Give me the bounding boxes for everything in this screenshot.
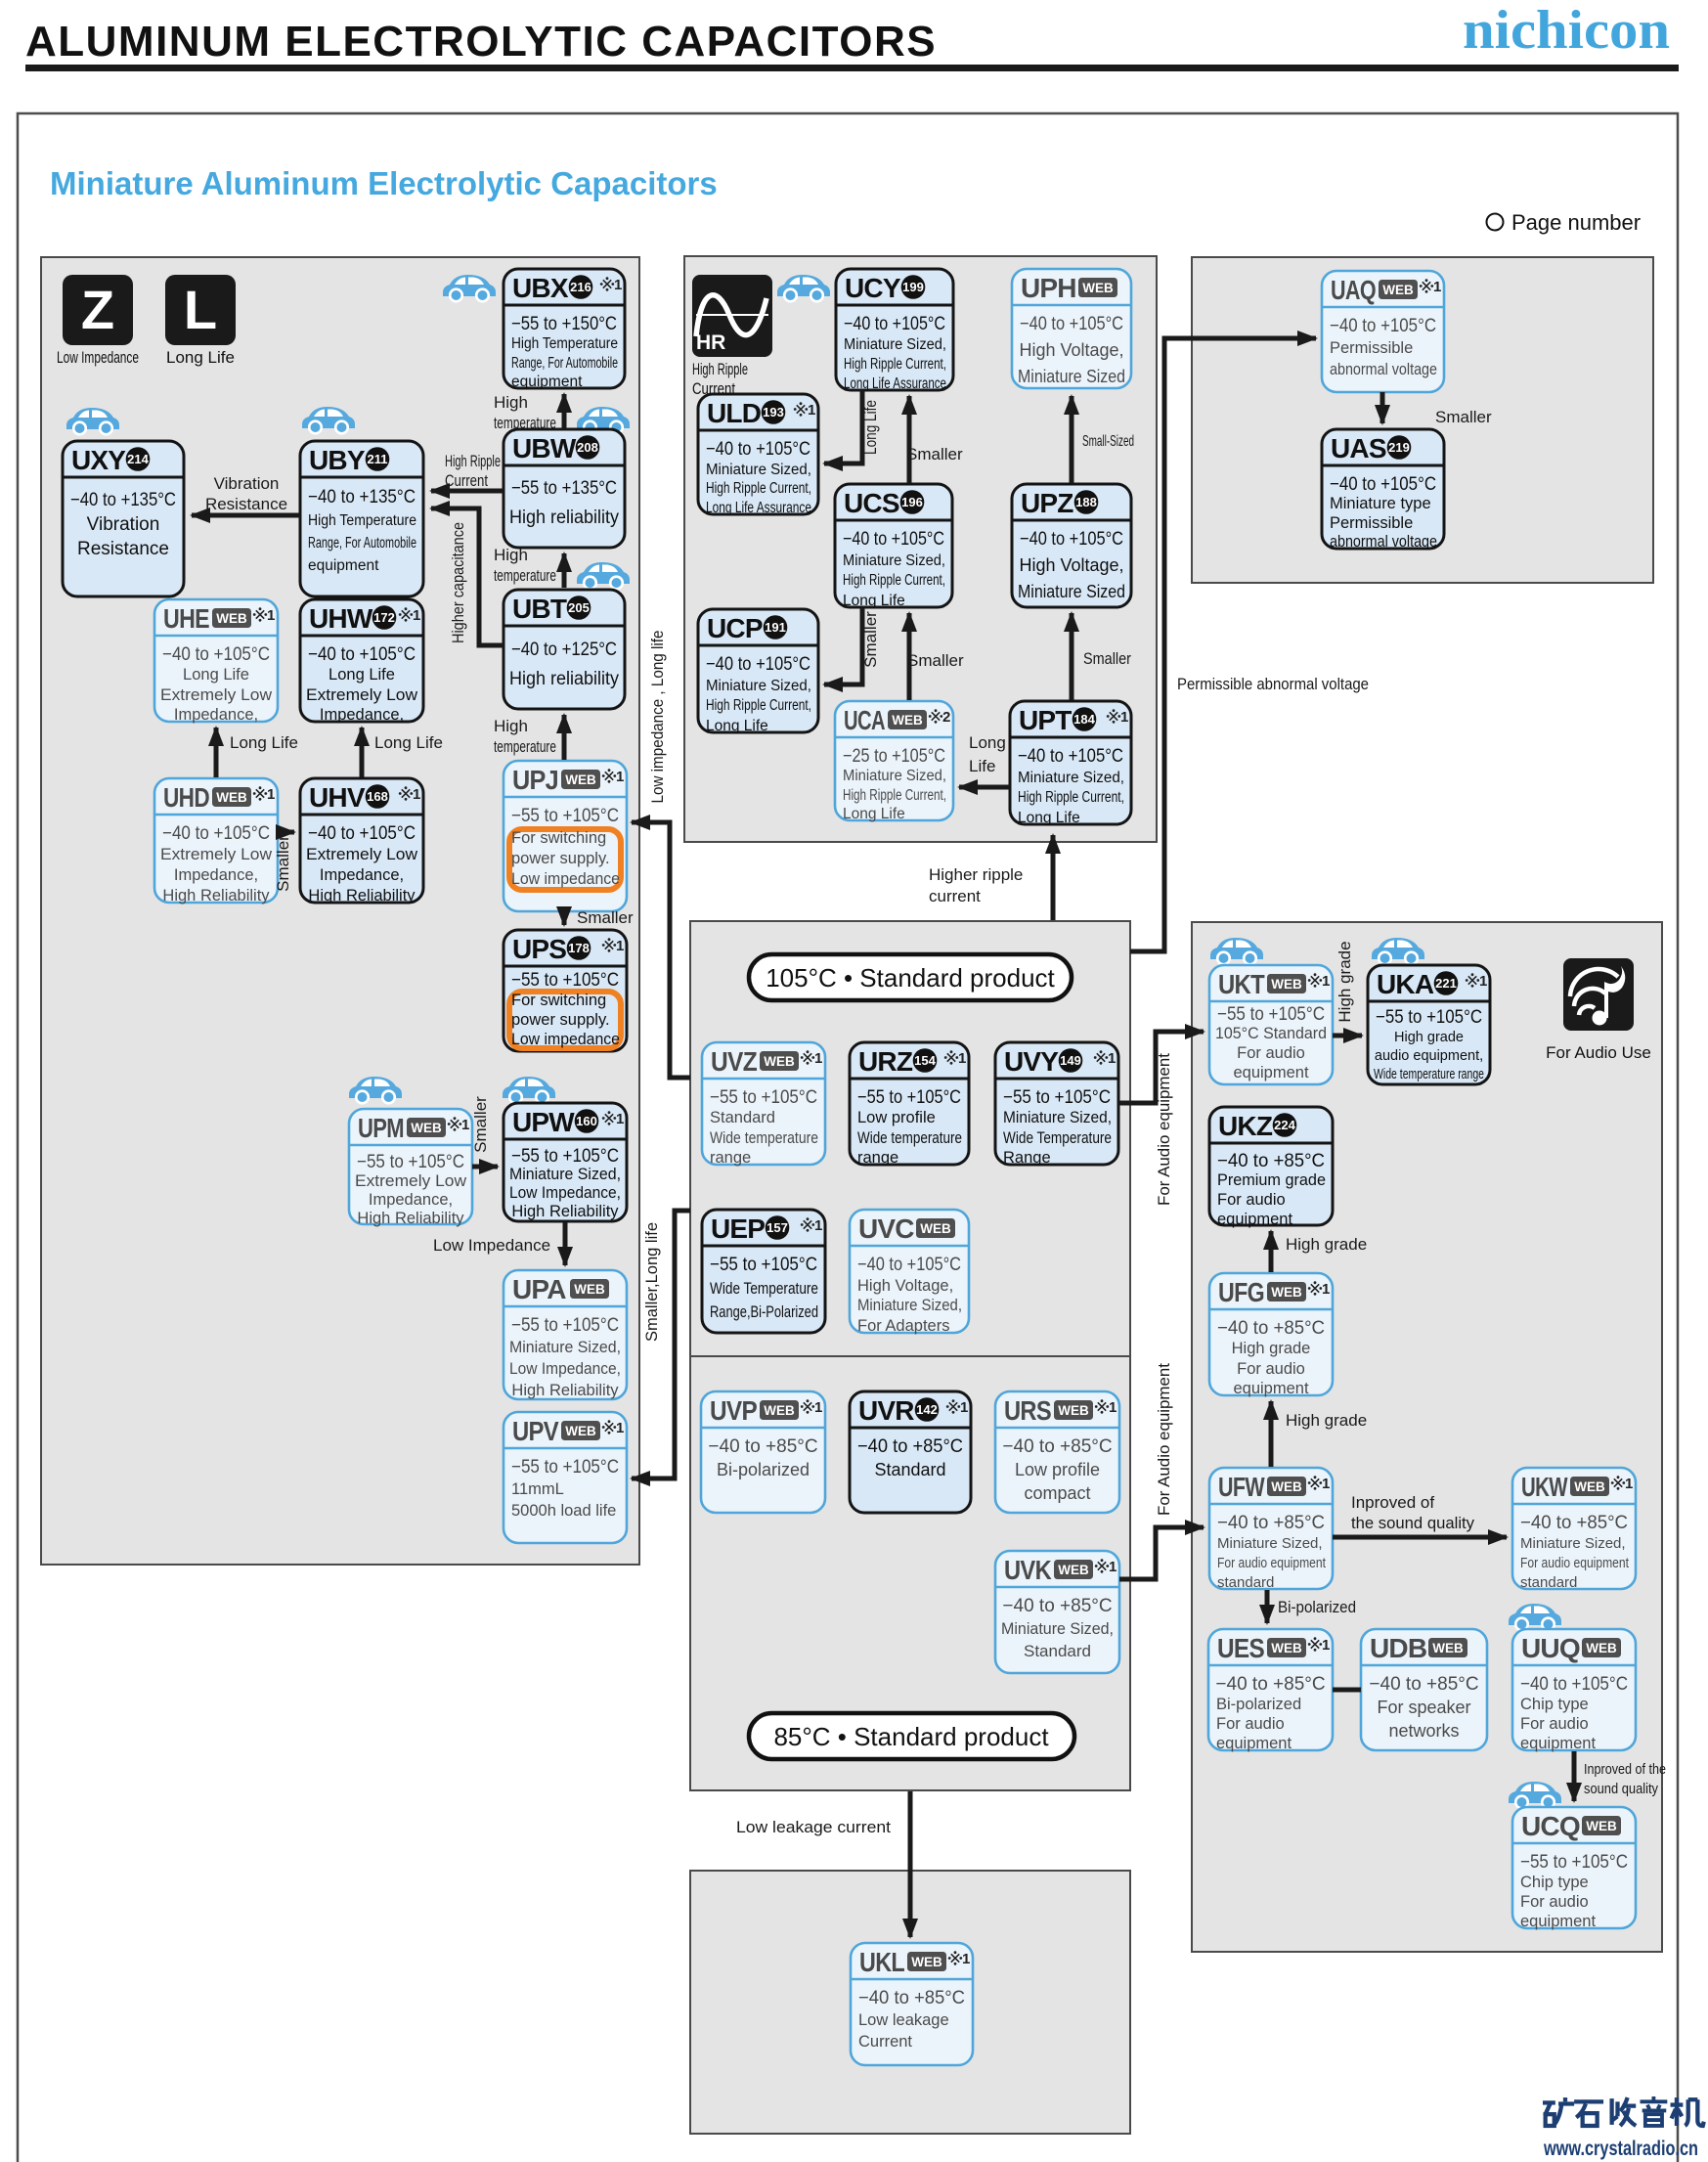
svg-text:UCA: UCA [844, 705, 885, 735]
svg-text:1: 1 [1322, 973, 1330, 990]
svg-text:Extremely Low: Extremely Low [355, 1172, 466, 1190]
svg-text:Extremely Low: Extremely Low [306, 846, 417, 863]
svg-text:abnormal voltage: abnormal voltage [1330, 533, 1437, 551]
svg-text:Miniature Sized,: Miniature Sized, [1520, 1535, 1626, 1552]
svg-text:Page number: Page number [1511, 210, 1641, 235]
svg-text:Smaller: Smaller [907, 651, 964, 670]
svg-text:Permissible: Permissible [1330, 339, 1413, 357]
svg-text:Impedance,: Impedance, [320, 866, 404, 884]
svg-text:178: 178 [568, 941, 590, 955]
svg-text:Current: Current [445, 471, 488, 490]
svg-text:188: 188 [1075, 495, 1097, 509]
svg-text:−55 to +105°C: −55 to +105°C [1003, 1087, 1111, 1108]
svg-text:1: 1 [616, 769, 624, 785]
svg-text:networks: networks [1388, 1721, 1459, 1741]
svg-text:Resistance: Resistance [77, 539, 169, 559]
svg-text:1: 1 [808, 402, 815, 419]
svg-text:WEB: WEB [216, 611, 247, 626]
svg-text:Smaller: Smaller [471, 1096, 490, 1153]
svg-text:High reliability: High reliability [509, 507, 619, 528]
svg-text:ULD: ULD [707, 398, 762, 428]
svg-text:High: High [494, 393, 528, 412]
svg-text:205: 205 [568, 600, 590, 615]
svg-text:High Ripple: High Ripple [445, 452, 501, 470]
svg-text:1: 1 [1120, 709, 1128, 726]
svg-text:1: 1 [1479, 973, 1487, 990]
svg-text:Wide temperature range: Wide temperature range [1374, 1067, 1484, 1082]
svg-text:105°C • Standard product: 105°C • Standard product [766, 963, 1055, 993]
svg-text:−55 to +105°C: −55 to +105°C [511, 1146, 619, 1167]
svg-text:1: 1 [814, 1399, 822, 1416]
svg-text:Wide temperature: Wide temperature [710, 1129, 818, 1147]
svg-text:Extremely Low: Extremely Low [160, 846, 272, 863]
svg-text:Wide Temperature: Wide Temperature [1003, 1129, 1112, 1147]
svg-text:Smaller,Long life: Smaller,Long life [642, 1222, 661, 1342]
svg-text:1: 1 [814, 1050, 822, 1067]
svg-text:1: 1 [1322, 1476, 1330, 1492]
svg-text:−25 to +105°C: −25 to +105°C [843, 746, 945, 767]
svg-text:Vibration: Vibration [87, 514, 160, 535]
svg-text:UPW: UPW [512, 1107, 575, 1137]
svg-text:the sound quality: the sound quality [1351, 1514, 1474, 1532]
svg-text:199: 199 [902, 280, 924, 294]
svg-text:−40 to +105°C: −40 to +105°C [1520, 1674, 1628, 1695]
svg-text:UAS: UAS [1331, 433, 1386, 463]
svg-text:UPZ: UPZ [1021, 488, 1073, 518]
svg-text:−55 to +105°C: −55 to +105°C [511, 970, 619, 991]
svg-text:Impedance,: Impedance, [320, 706, 404, 724]
svg-text:Long Life: Long Life [183, 666, 249, 684]
svg-text:High grade: High grade [1286, 1235, 1367, 1254]
svg-text:abnormal voltage: abnormal voltage [1330, 361, 1437, 378]
svg-text:WEB: WEB [764, 1403, 795, 1418]
svg-text:Vibration: Vibration [214, 474, 280, 493]
svg-text:WEB: WEB [216, 790, 247, 805]
svg-text:For Audio equipment: For Audio equipment [1155, 1363, 1173, 1516]
svg-text:Smaller: Smaller [861, 611, 880, 668]
svg-text:UFG: UFG [1218, 1277, 1264, 1307]
svg-text:Miniature Sized,: Miniature Sized, [706, 462, 811, 478]
svg-text:power supply.: power supply. [511, 1011, 610, 1029]
svg-text:−40 to +85°C: −40 to +85°C [1369, 1674, 1478, 1695]
svg-text:UFW: UFW [1218, 1472, 1265, 1502]
svg-text:High grade: High grade [1336, 941, 1354, 1022]
svg-text:WEB: WEB [565, 1424, 596, 1438]
svg-text:WEB: WEB [574, 1282, 605, 1297]
svg-text:Miniature Aluminum Electrolyti: Miniature Aluminum Electrolytic Capacito… [50, 165, 718, 201]
svg-text:UCY: UCY [845, 273, 901, 303]
svg-text:−55 to +105°C: −55 to +105°C [511, 806, 619, 826]
svg-text:For Adapters: For Adapters [857, 1317, 949, 1335]
svg-text:Bi-polarized: Bi-polarized [1216, 1696, 1301, 1713]
svg-text:Chip type: Chip type [1520, 1696, 1589, 1713]
svg-text:sound quality: sound quality [1584, 1782, 1659, 1797]
svg-text:−40 to +85°C: −40 to +85°C [1217, 1151, 1325, 1171]
svg-text:compact: compact [1024, 1483, 1090, 1503]
svg-text:WEB: WEB [764, 1054, 795, 1069]
svg-text:Low leakage current: Low leakage current [736, 1818, 891, 1836]
svg-text:−40 to +85°C: −40 to +85°C [1215, 1674, 1325, 1695]
svg-text:High Temperature: High Temperature [308, 512, 416, 529]
svg-text:Permissible: Permissible [1330, 514, 1413, 532]
svg-text:UPH: UPH [1021, 273, 1076, 303]
svg-text:Low impedance: Low impedance [511, 870, 620, 888]
svg-text:For audio: For audio [1237, 1360, 1305, 1378]
svg-text:UPV: UPV [512, 1416, 559, 1446]
svg-text:High Reliability: High Reliability [511, 1203, 619, 1220]
svg-text:UXY: UXY [71, 445, 126, 475]
svg-text:149: 149 [1060, 1053, 1081, 1068]
svg-text:equipment: equipment [1520, 1735, 1596, 1752]
svg-text:UCS: UCS [844, 488, 899, 518]
svg-text:High Ripple Current,: High Ripple Current, [706, 697, 811, 714]
svg-text:168: 168 [367, 789, 388, 804]
svg-text:temperature: temperature [494, 566, 556, 585]
svg-text:WEB: WEB [1271, 1285, 1302, 1300]
svg-text:−40 to +105°C: −40 to +105°C [308, 823, 416, 844]
svg-text:214: 214 [127, 452, 149, 466]
svg-text:Smaller: Smaller [906, 445, 963, 463]
svg-text:High Ripple Current,: High Ripple Current, [1018, 789, 1124, 806]
svg-text:224: 224 [1274, 1118, 1295, 1132]
svg-text:216: 216 [570, 280, 591, 294]
svg-text:Life: Life [969, 757, 995, 775]
svg-text:WEB: WEB [1382, 283, 1414, 297]
svg-text:−55 to +105°C: −55 to +105°C [357, 1152, 464, 1172]
svg-text:Miniature Sized,: Miniature Sized, [706, 678, 811, 694]
svg-text:For switching: For switching [511, 829, 606, 847]
svg-text:High Voltage,: High Voltage, [857, 1277, 953, 1295]
svg-text:−40 to +105°C: −40 to +105°C [1330, 316, 1436, 336]
svg-text:11mmL: 11mmL [511, 1480, 564, 1498]
svg-text:−55 to +105°C: −55 to +105°C [857, 1087, 961, 1108]
svg-text:Smaller: Smaller [1083, 649, 1131, 668]
svg-text:1: 1 [1108, 1050, 1116, 1067]
svg-text:UPM: UPM [358, 1113, 404, 1143]
svg-text:1: 1 [413, 786, 420, 803]
svg-text:1: 1 [267, 786, 275, 803]
svg-text:Chip type: Chip type [1520, 1874, 1589, 1891]
svg-text:WEB: WEB [1271, 1479, 1302, 1494]
svg-text:219: 219 [1388, 440, 1410, 455]
svg-text:For audio equipment: For audio equipment [1217, 1555, 1327, 1571]
svg-text:For Audio Use: For Audio Use [1546, 1043, 1651, 1062]
svg-text:Miniature Sized,: Miniature Sized, [857, 1297, 962, 1314]
svg-text:WEB: WEB [1058, 1403, 1089, 1418]
svg-text:WEB: WEB [565, 772, 596, 787]
svg-text:standard: standard [1217, 1574, 1274, 1591]
svg-text:193: 193 [763, 405, 784, 419]
svg-text:For speaker: For speaker [1377, 1698, 1470, 1717]
svg-text:URZ: URZ [858, 1046, 913, 1077]
svg-text:Low Impedance,: Low Impedance, [509, 1184, 621, 1202]
svg-text:equipment: equipment [1233, 1064, 1308, 1081]
svg-text:WEB: WEB [892, 713, 923, 728]
svg-text:208: 208 [577, 440, 598, 455]
svg-text:1: 1 [1322, 1281, 1330, 1298]
svg-text:High Ripple Current,: High Ripple Current, [843, 787, 946, 804]
svg-text:−55 to +105°C: −55 to +105°C [710, 1255, 817, 1275]
svg-text:1: 1 [960, 1399, 968, 1416]
svg-text:Long Life: Long Life [861, 400, 880, 455]
svg-text:UCP: UCP [707, 613, 763, 643]
svg-text:Range: Range [1003, 1149, 1051, 1167]
svg-text:High Reliability: High Reliability [162, 887, 270, 905]
svg-text:196: 196 [901, 495, 923, 509]
svg-text:−40 to +135°C: −40 to +135°C [308, 487, 416, 507]
svg-text:For audio: For audio [1217, 1191, 1286, 1209]
svg-text:Current: Current [858, 2033, 912, 2051]
svg-text:UPT: UPT [1019, 705, 1072, 735]
svg-text:Range, For Automobile: Range, For Automobile [308, 535, 416, 552]
svg-text:184: 184 [1073, 712, 1095, 727]
svg-text:Standard: Standard [874, 1460, 945, 1479]
svg-text:UDB: UDB [1370, 1633, 1426, 1663]
svg-text:UAQ: UAQ [1331, 275, 1376, 305]
svg-text:High Ripple Current,: High Ripple Current, [844, 356, 946, 373]
svg-text:High Ripple: High Ripple [692, 360, 748, 378]
svg-text:Long Life: Long Life [843, 806, 905, 822]
svg-text:−40 to +105°C: −40 to +105°C [706, 654, 810, 675]
svg-text:Extremely Low: Extremely Low [160, 686, 272, 704]
svg-text:UHV: UHV [309, 782, 366, 813]
svg-text:Impedance,: Impedance, [174, 706, 258, 724]
svg-text:WEB: WEB [411, 1121, 442, 1135]
svg-text:Miniature type: Miniature type [1330, 495, 1431, 512]
svg-text:−40 to +105°C: −40 to +105°C [162, 823, 270, 844]
svg-text:−40 to +105°C: −40 to +105°C [1018, 746, 1123, 767]
svg-text:L: L [184, 279, 217, 340]
svg-text:Small-Sized: Small-Sized [1082, 433, 1134, 450]
svg-text:Miniature Sized,: Miniature Sized, [1217, 1535, 1323, 1552]
svg-text:Low impedance: Low impedance [511, 1031, 620, 1048]
svg-text:Long Life: Long Life [1018, 810, 1080, 826]
svg-text:High grade: High grade [1232, 1340, 1311, 1357]
svg-text:WEB: WEB [1271, 1641, 1302, 1655]
svg-text:Standard: Standard [1024, 1642, 1091, 1660]
svg-text:Long Life: Long Life [843, 593, 905, 609]
svg-text:power supply.: power supply. [511, 850, 610, 867]
svg-text:Low profile: Low profile [1015, 1460, 1100, 1479]
svg-text:UKZ: UKZ [1218, 1111, 1273, 1141]
svg-text:2: 2 [942, 709, 950, 726]
svg-text:Permissible abnormal voltage: Permissible abnormal voltage [1177, 675, 1369, 693]
svg-text:Z: Z [81, 279, 114, 340]
svg-text:UKL: UKL [859, 1947, 905, 1977]
svg-text:1: 1 [962, 1951, 970, 1967]
svg-text:−40 to +85°C: −40 to +85°C [857, 1436, 963, 1457]
svg-text:WEB: WEB [1058, 1563, 1089, 1577]
svg-text:For audio: For audio [1520, 1715, 1589, 1733]
svg-text:range: range [857, 1149, 898, 1167]
svg-text:154: 154 [914, 1053, 936, 1068]
svg-text:UPJ: UPJ [512, 765, 558, 795]
svg-text:−55 to +105°C: −55 to +105°C [511, 1315, 619, 1336]
svg-text:−55 to +105°C: −55 to +105°C [511, 1457, 619, 1478]
svg-text:1: 1 [1322, 1637, 1330, 1654]
svg-text:Long Life: Long Life [230, 733, 298, 752]
svg-text:WEB: WEB [1586, 1641, 1617, 1655]
svg-text:Miniature Sized,: Miniature Sized, [1018, 770, 1124, 786]
svg-text:UEP: UEP [711, 1213, 765, 1244]
svg-text:equipment: equipment [308, 557, 379, 574]
svg-text:Higher ripple: Higher ripple [929, 865, 1023, 884]
svg-text:160: 160 [576, 1114, 597, 1128]
svg-text:For audio: For audio [1216, 1715, 1285, 1733]
svg-text:High reliability: High reliability [509, 669, 619, 689]
svg-text:−40 to +85°C: −40 to +85°C [1002, 1436, 1112, 1457]
svg-text:−55 to +105°C: −55 to +105°C [710, 1087, 817, 1108]
svg-text:Standard: Standard [710, 1109, 775, 1126]
svg-text:equipment: equipment [1520, 1913, 1596, 1930]
svg-text:1: 1 [1109, 1399, 1117, 1416]
svg-text:Miniature Sized: Miniature Sized [1018, 367, 1125, 386]
svg-text:1: 1 [1109, 1559, 1117, 1575]
svg-text:High Ripple Current,: High Ripple Current, [706, 480, 811, 497]
svg-text:Long Life Assurance: Long Life Assurance [706, 500, 811, 516]
svg-text:Low Impedance: Low Impedance [57, 348, 139, 367]
svg-text:Impedance,: Impedance, [174, 866, 258, 884]
svg-text:UBW: UBW [512, 433, 577, 463]
svg-text:Miniature Sized,: Miniature Sized, [843, 768, 946, 784]
svg-text:URS: URS [1004, 1395, 1051, 1426]
svg-text:equipment: equipment [1217, 1211, 1292, 1228]
svg-text:UCQ: UCQ [1521, 1811, 1580, 1841]
svg-text:1: 1 [267, 607, 275, 624]
svg-text:High: High [494, 717, 528, 735]
svg-text:UVY: UVY [1004, 1046, 1059, 1077]
svg-text:Smaller: Smaller [1435, 408, 1492, 426]
svg-text:temperature: temperature [494, 737, 556, 756]
svg-text:UVZ: UVZ [711, 1046, 758, 1077]
svg-text:WEB: WEB [920, 1221, 951, 1236]
svg-text:Low profile: Low profile [857, 1109, 936, 1126]
svg-text:UKT: UKT [1218, 969, 1265, 999]
svg-text:WEB: WEB [1432, 1641, 1464, 1655]
svg-text:Long Life: Long Life [166, 348, 235, 367]
svg-text:For audio: For audio [1237, 1044, 1305, 1062]
svg-text:−40 to +125°C: −40 to +125°C [511, 640, 617, 660]
svg-text:High Voltage,: High Voltage, [1019, 555, 1123, 575]
svg-text:Premium grade: Premium grade [1217, 1171, 1326, 1189]
svg-text:−40 to +85°C: −40 to +85°C [1002, 1596, 1112, 1616]
svg-text:Extremely Low: Extremely Low [306, 686, 417, 704]
svg-text:Long: Long [969, 733, 1006, 752]
svg-text:Range,Bi-Polarized: Range,Bi-Polarized [710, 1303, 818, 1321]
svg-text:UHE: UHE [163, 603, 209, 634]
svg-text:Range, For Automobile: Range, For Automobile [511, 355, 618, 372]
svg-text:157: 157 [766, 1220, 788, 1235]
svg-text:1: 1 [461, 1117, 469, 1133]
svg-text:−55 to +105°C: −55 to +105°C [1376, 1007, 1482, 1028]
svg-text:Miniature Sized,: Miniature Sized, [844, 336, 946, 353]
svg-text:Miniature Sized,: Miniature Sized, [509, 1339, 621, 1356]
svg-text:1: 1 [413, 607, 420, 624]
svg-text:UBY: UBY [309, 445, 366, 475]
svg-text:1: 1 [1433, 279, 1441, 295]
svg-text:UBX: UBX [512, 273, 569, 303]
svg-text:equipment: equipment [511, 374, 583, 390]
svg-text:UVC: UVC [858, 1213, 914, 1244]
svg-text:WEB: WEB [1574, 1479, 1605, 1494]
svg-text:HR: HR [696, 331, 725, 354]
svg-text:Inproved of: Inproved of [1351, 1493, 1434, 1512]
svg-text:UKA: UKA [1377, 969, 1434, 999]
svg-text:−40 to +105°C: −40 to +105°C [1330, 474, 1436, 495]
svg-text:−40 to +105°C: −40 to +105°C [843, 529, 944, 550]
svg-text:UKW: UKW [1521, 1472, 1568, 1502]
svg-text:equipment: equipment [1216, 1735, 1292, 1752]
svg-text:High Reliability: High Reliability [357, 1210, 464, 1227]
svg-text:−40 to +105°C: −40 to +105°C [1020, 529, 1123, 550]
svg-text:standard: standard [1520, 1574, 1577, 1591]
svg-text:UUQ: UUQ [1521, 1633, 1580, 1663]
svg-text:1: 1 [1625, 1476, 1633, 1492]
svg-text:−40 to +105°C: −40 to +105°C [706, 439, 810, 460]
svg-text:105°C Standard: 105°C Standard [1215, 1025, 1327, 1042]
svg-text:nichicon: nichicon [1463, 0, 1670, 61]
svg-text:−40 to +105°C: −40 to +105°C [308, 644, 416, 665]
svg-text:UHD: UHD [163, 782, 209, 813]
svg-text:UES: UES [1217, 1633, 1264, 1663]
svg-text:www.crystalradio.cn: www.crystalradio.cn [1543, 2138, 1698, 2160]
svg-text:−55 to +135°C: −55 to +135°C [511, 478, 617, 499]
svg-text:−55 to +150°C: −55 to +150°C [511, 314, 617, 334]
svg-text:−40 to +85°C: −40 to +85°C [1217, 1318, 1325, 1339]
svg-text:Long Life Assurance: Long Life Assurance [844, 375, 946, 392]
svg-text:UBT: UBT [512, 594, 567, 624]
svg-text:85°C • Standard product: 85°C • Standard product [773, 1722, 1049, 1751]
svg-text:Miniature Sized,: Miniature Sized, [1001, 1619, 1114, 1638]
svg-text:−55 to +105°C: −55 to +105°C [1217, 1004, 1325, 1025]
svg-text:Long Life: Long Life [374, 733, 443, 752]
svg-text:−40 to +85°C: −40 to +85°C [1520, 1513, 1628, 1533]
svg-text:−40 to +135°C: −40 to +135°C [70, 490, 176, 510]
svg-text:Bi-polarized: Bi-polarized [717, 1460, 810, 1479]
svg-text:1: 1 [616, 1111, 624, 1127]
svg-text:audio equipment,: audio equipment, [1375, 1048, 1483, 1064]
svg-text:Low Impedance: Low Impedance [433, 1236, 550, 1255]
svg-text:−40 to +85°C: −40 to +85°C [708, 1436, 817, 1457]
svg-text:For audio: For audio [1520, 1893, 1589, 1911]
svg-text:Low Impedance,: Low Impedance, [509, 1360, 621, 1378]
svg-text:High: High [494, 546, 528, 564]
svg-text:High grade: High grade [1394, 1030, 1464, 1045]
svg-text:Miniature Sized: Miniature Sized [1018, 582, 1125, 601]
svg-text:Long Life: Long Life [328, 666, 395, 684]
svg-text:current: current [929, 887, 981, 905]
svg-text:1: 1 [958, 1050, 966, 1067]
svg-text:High Temperature: High Temperature [511, 335, 618, 352]
svg-text:temperature: temperature [494, 414, 556, 432]
svg-text:1: 1 [814, 1217, 822, 1234]
svg-text:range: range [710, 1149, 751, 1167]
svg-text:−40 to +105°C: −40 to +105°C [844, 314, 945, 334]
svg-text:High Reliability: High Reliability [511, 1382, 619, 1399]
svg-text:UVP: UVP [710, 1395, 757, 1426]
svg-text:Miniature Sized,: Miniature Sized, [509, 1166, 621, 1183]
svg-text:UPS: UPS [512, 934, 566, 964]
svg-text:For Audio equipment: For Audio equipment [1155, 1053, 1173, 1206]
svg-text:191: 191 [765, 620, 786, 635]
svg-text:High Reliability: High Reliability [308, 887, 416, 905]
svg-text:Smaller: Smaller [274, 835, 292, 892]
svg-text:Wide Temperature: Wide Temperature [710, 1280, 818, 1298]
svg-text:−55 to +105°C: −55 to +105°C [1520, 1852, 1628, 1873]
svg-text:For switching: For switching [511, 992, 606, 1009]
svg-text:1: 1 [614, 277, 622, 293]
svg-text:172: 172 [373, 610, 395, 625]
